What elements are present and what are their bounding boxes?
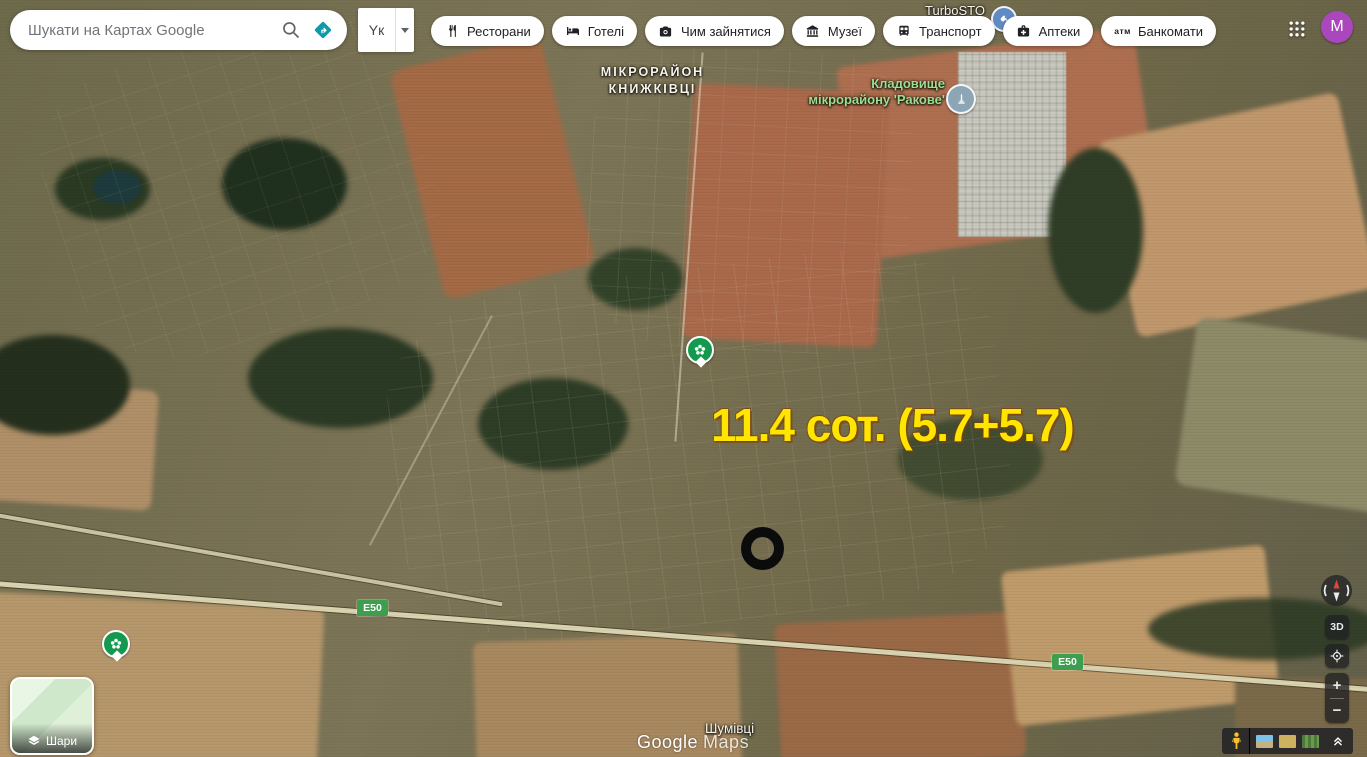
transit-icon xyxy=(896,23,912,39)
zoom-in-button[interactable]: + xyxy=(1325,675,1349,696)
imagery-bar xyxy=(1222,728,1353,754)
directions-icon[interactable] xyxy=(311,18,335,42)
museums-icon xyxy=(805,23,821,39)
my-location-button[interactable] xyxy=(1325,644,1349,668)
chip-label: Аптеки xyxy=(1039,24,1081,39)
pharmacies-icon xyxy=(1016,23,1032,39)
search-input[interactable] xyxy=(28,22,271,39)
category-chip-3[interactable]: Чим зайнятися xyxy=(645,16,784,46)
account-avatar[interactable]: M xyxy=(1321,11,1353,43)
search-icon[interactable] xyxy=(279,18,303,42)
google-maps-app: МІКРОРАЙОН КНИЖКІВЦІ Кладовище мікрорайо… xyxy=(0,0,1367,757)
layers-button[interactable]: Шари xyxy=(10,677,94,755)
compass-control[interactable] xyxy=(1320,574,1353,607)
green-place-marker[interactable] xyxy=(686,336,716,372)
district-label: МІКРОРАЙОН КНИЖКІВЦІ xyxy=(560,64,745,98)
google-maps-watermark: GoogleMaps xyxy=(637,732,749,753)
collapse-chevrons-icon[interactable] xyxy=(1331,734,1345,748)
pegman-icon[interactable] xyxy=(1230,732,1243,750)
category-chip-4[interactable]: Музеї xyxy=(792,16,875,46)
green-place-marker[interactable] xyxy=(102,630,132,666)
circle-annotation xyxy=(741,527,784,570)
hotels-icon xyxy=(565,23,581,39)
imagery-thumbnail[interactable] xyxy=(1302,735,1319,748)
things-to-do-icon xyxy=(658,23,674,39)
category-chip-1[interactable]: Ресторани xyxy=(431,16,544,46)
chip-label: Транспорт xyxy=(919,24,982,39)
location-target-icon xyxy=(1329,648,1345,664)
chip-label: Готелі xyxy=(588,24,624,39)
layers-icon xyxy=(27,734,41,748)
input-tools-button[interactable]: Yк xyxy=(358,8,414,52)
imagery-thumbnail[interactable] xyxy=(1279,735,1296,748)
google-apps-grid-icon[interactable] xyxy=(1284,16,1310,42)
restaurants-icon xyxy=(444,23,460,39)
road-shield-e50: E50 xyxy=(1052,654,1083,670)
zoom-control: + − xyxy=(1325,673,1349,723)
category-chip-2[interactable]: Готелі xyxy=(552,16,637,46)
chevron-down-icon[interactable] xyxy=(396,28,414,33)
3d-view-button[interactable]: 3D xyxy=(1325,615,1349,639)
zoom-out-button[interactable]: − xyxy=(1325,700,1349,721)
satellite-map-canvas[interactable] xyxy=(0,0,1367,757)
road-shield-e50: E50 xyxy=(357,600,388,616)
chip-label: Банкомати xyxy=(1138,24,1203,39)
chip-label: Ресторани xyxy=(467,24,531,39)
category-chip-5[interactable]: Транспорт xyxy=(883,16,995,46)
cemetery-icon[interactable] xyxy=(946,84,976,114)
category-chips: РестораниГотеліЧим зайнятисяМузеїТранспо… xyxy=(431,16,1216,46)
area-annotation: 11.4 сот. (5.7+5.7) xyxy=(711,398,1074,452)
atm-icon: атм xyxy=(1114,23,1131,39)
category-chip-7[interactable]: атмБанкомати xyxy=(1101,16,1216,46)
category-chip-6[interactable]: Аптеки xyxy=(1003,16,1094,46)
chip-label: Чим зайнятися xyxy=(681,24,771,39)
imagery-thumbnail[interactable] xyxy=(1256,735,1273,748)
input-tools-label: Yк xyxy=(358,8,396,52)
search-box[interactable] xyxy=(10,10,347,50)
cemetery-label[interactable]: Кладовище мікрорайону 'Ракове' xyxy=(795,76,945,108)
chip-label: Музеї xyxy=(828,24,862,39)
layers-label: Шари xyxy=(46,734,77,748)
